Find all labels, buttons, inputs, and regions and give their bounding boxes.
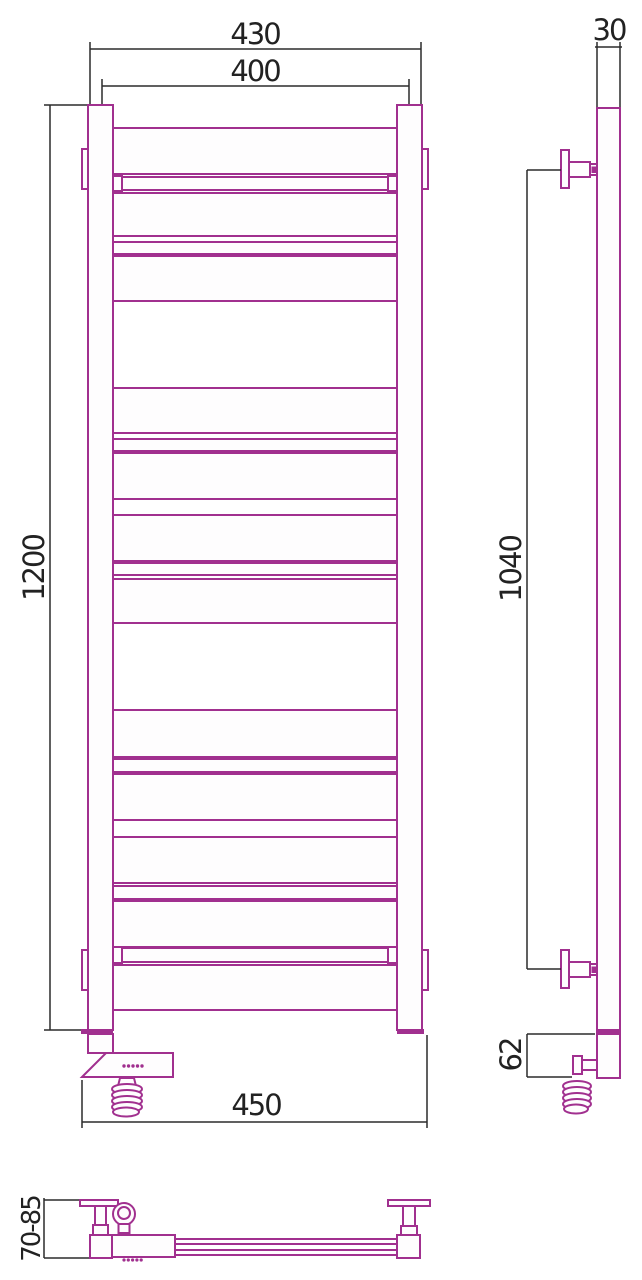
dim-1040: 1040: [494, 170, 561, 969]
front-rung-wide: [113, 128, 397, 174]
front-rung-wide: [113, 515, 397, 561]
dim-62-label: 62: [494, 1039, 528, 1072]
dim-430-label: 430: [230, 17, 280, 51]
top-bracket-right: [388, 1200, 430, 1235]
indicator-dot: [122, 1258, 125, 1261]
top-right-post: [397, 1235, 420, 1258]
top-indicator-dots: [122, 1258, 142, 1261]
cord-coil-loop: [113, 1108, 139, 1117]
dim-400-label: 400: [230, 54, 280, 88]
dim-450-label: 450: [231, 1088, 281, 1122]
front-rung-wide: [113, 193, 397, 236]
front-rung-tab: [113, 177, 397, 190]
front-rung-wide: [113, 901, 397, 947]
front-rung-wide: [113, 453, 397, 499]
front-rung-wide: [113, 256, 397, 301]
top-cable-gland: [113, 1203, 135, 1233]
front-rung-wide: [113, 710, 397, 757]
front-bracket-bottom-right: [422, 950, 428, 990]
dim-1200-label: 1200: [17, 535, 51, 601]
bracket-foot: [401, 1226, 417, 1235]
side-bracket-upper: [561, 150, 597, 188]
top-view: 70-85: [17, 1196, 430, 1262]
front-left-post: [88, 105, 113, 1030]
indicator-dot: [140, 1064, 143, 1067]
bracket-stem: [403, 1206, 415, 1226]
dim-30: 30: [593, 13, 626, 108]
top-bracket-left: [80, 1200, 118, 1235]
side-view: 30 1040: [494, 13, 626, 1114]
front-rung-narrow: [113, 439, 397, 451]
side-heater-box: [597, 1034, 620, 1078]
front-rung-wide: [113, 388, 397, 433]
front-bracket-top-right: [422, 149, 428, 189]
top-rail-rear: [175, 1239, 397, 1244]
front-right-post-cap: [397, 1029, 424, 1034]
front-rung-wide: [113, 837, 397, 883]
front-view: 430 400 1200 450: [17, 17, 428, 1128]
front-rung-end-tab: [388, 947, 397, 963]
indicator-dot: [131, 1258, 134, 1261]
bracket-plate: [561, 950, 569, 988]
bracket-connector-core: [592, 967, 597, 974]
indicator-dot: [122, 1064, 125, 1067]
side-bar: [597, 108, 620, 1034]
front-rung-wide: [113, 579, 397, 623]
front-bracket-top-left: [82, 149, 88, 189]
technical-drawing-page: 430 400 1200 450: [0, 0, 642, 1280]
front-post-extension: [88, 1034, 113, 1053]
bracket-stem: [95, 1206, 106, 1225]
indicator-dot: [127, 1258, 130, 1261]
bracket-stem: [569, 162, 590, 177]
front-right-post: [397, 105, 422, 1030]
side-bracket-lower: [561, 950, 597, 988]
front-rung-tab: [113, 948, 397, 962]
front-rungs: [113, 128, 397, 1010]
front-rung-end-tab: [388, 176, 397, 191]
indicator-dot: [136, 1064, 139, 1067]
front-rung-narrow: [113, 242, 397, 254]
front-rung-wide: [113, 965, 397, 1010]
bracket-connector-core: [592, 167, 597, 174]
indicator-dot: [131, 1064, 134, 1067]
side-power-cord: [563, 1056, 597, 1114]
front-rung-wide: [113, 774, 397, 820]
front-power-cord: [112, 1078, 142, 1117]
front-rung-narrow: [113, 886, 397, 899]
front-bracket-bottom-left: [82, 950, 88, 990]
dim-1200: 1200: [17, 105, 88, 1030]
dim-400: 400: [102, 54, 409, 105]
front-rung-end-tab: [113, 176, 122, 191]
cord-elbow-collar: [573, 1056, 582, 1074]
top-left-post: [90, 1235, 112, 1258]
front-rung-narrow: [113, 563, 397, 575]
towel-rail-drawing: 430 400 1200 450: [0, 0, 642, 1280]
gland-stem: [119, 1224, 130, 1233]
dim-70-85-label: 70-85: [17, 1196, 47, 1262]
dim-30-label: 30: [593, 13, 626, 47]
indicator-dot: [135, 1258, 138, 1261]
indicator-dot: [127, 1064, 130, 1067]
indicator-dot: [140, 1258, 143, 1261]
front-rung-end-tab: [113, 947, 122, 963]
top-heater-box: [112, 1235, 175, 1257]
cord-coil-loop: [564, 1105, 588, 1114]
dim-1040-label: 1040: [494, 536, 528, 602]
bracket-stem: [569, 962, 590, 977]
front-rung-narrow: [113, 759, 397, 772]
bracket-foot: [93, 1225, 108, 1235]
bracket-plate: [561, 150, 569, 188]
